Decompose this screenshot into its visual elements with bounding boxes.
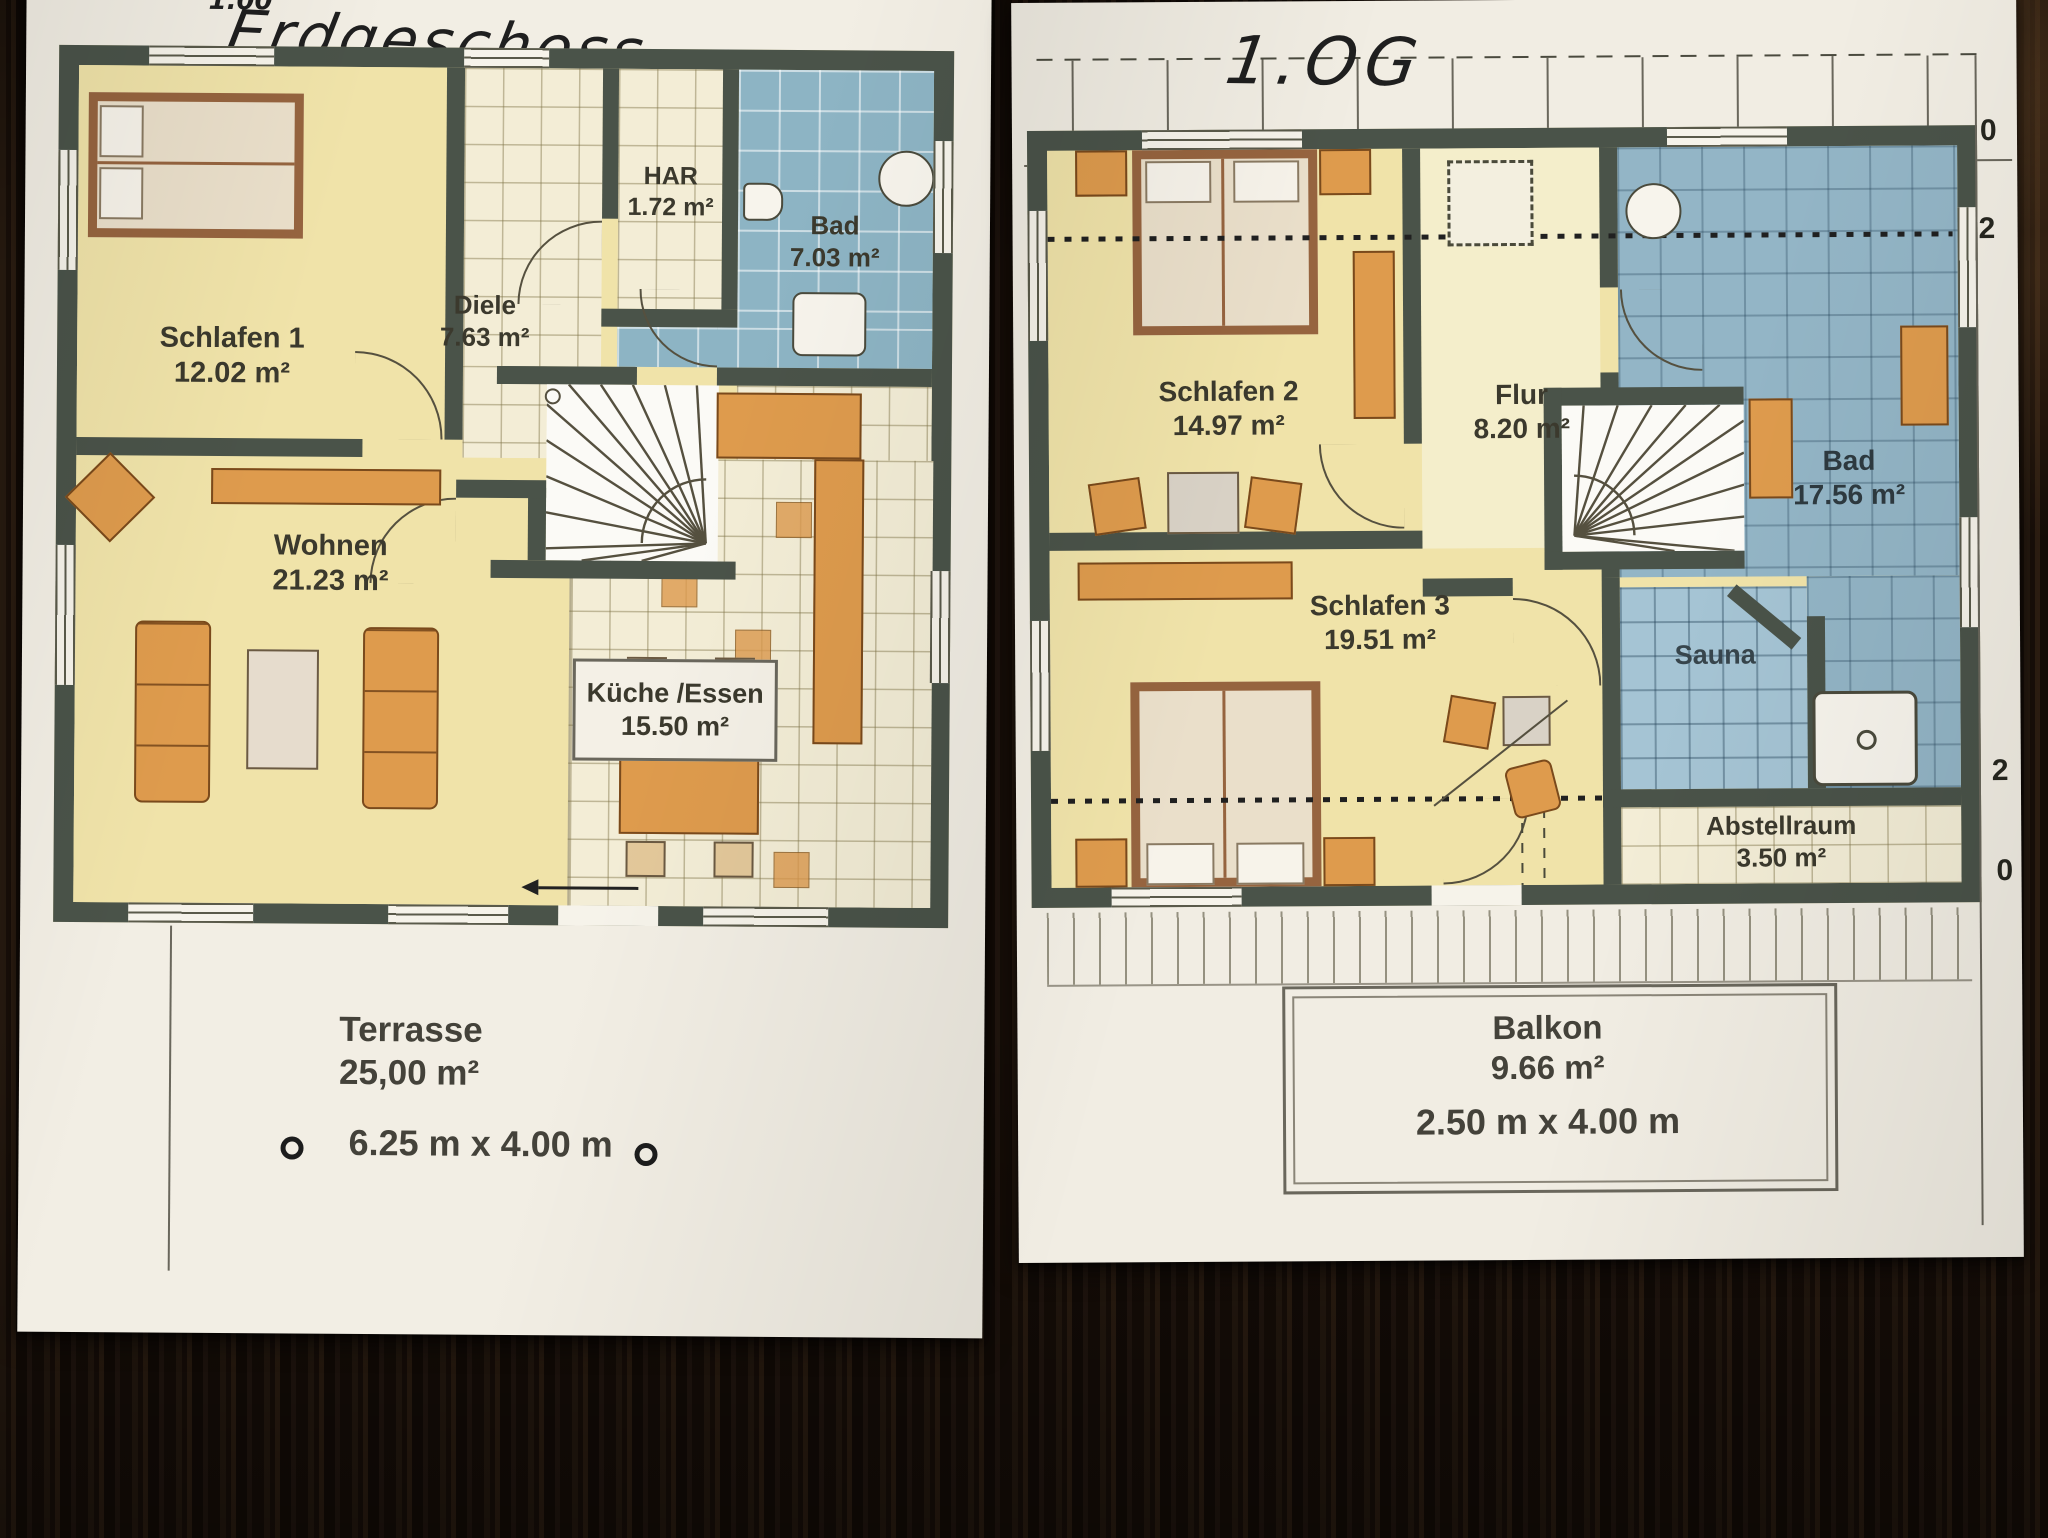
dimension-band-dashed-line xyxy=(1037,53,1977,61)
room-area: 12.02 m² xyxy=(117,356,347,393)
label-bad-og: Bad 17.56 m² xyxy=(1749,443,1949,513)
wall xyxy=(717,367,932,387)
label-kueche: Küche /Essen 15.50 m² xyxy=(572,658,778,761)
room-area: 17.56 m² xyxy=(1749,478,1949,513)
desk-chair xyxy=(1443,695,1496,750)
bed-schlafen2 xyxy=(1132,149,1318,335)
edge-number: 2 xyxy=(1978,211,2018,248)
window xyxy=(1142,129,1302,150)
pillow xyxy=(1145,161,1211,203)
sideboard-schlafen3 xyxy=(1078,561,1293,600)
desk-top xyxy=(1502,696,1550,746)
label-flur: Flur 8.20 m² xyxy=(1446,378,1596,447)
room-name: Abstellraum xyxy=(1651,810,1911,843)
window xyxy=(58,150,79,270)
entrance-arrow-head xyxy=(521,879,538,895)
window xyxy=(149,46,274,67)
edge-number: 0 xyxy=(1996,853,2023,890)
window xyxy=(464,48,549,69)
window xyxy=(1027,211,1048,341)
wall xyxy=(1545,551,1745,570)
window xyxy=(55,545,76,685)
label-sauna: Sauna xyxy=(1635,638,1795,672)
room-name: Bad xyxy=(1749,443,1949,478)
chair xyxy=(1088,477,1147,536)
terrace-area: 25,00 m² xyxy=(339,1052,589,1096)
window xyxy=(1667,126,1787,147)
dining-chair xyxy=(625,841,665,877)
coffee-table xyxy=(246,649,319,769)
room-area: 3.50 m² xyxy=(1651,841,1911,874)
pillow xyxy=(1146,843,1214,885)
window xyxy=(933,141,954,253)
wall xyxy=(491,560,736,580)
room-name: Wohnen xyxy=(216,528,446,565)
room-area: 21.23 m² xyxy=(215,563,445,600)
sofa-right xyxy=(362,627,439,810)
window xyxy=(703,906,828,927)
paper-erdgeschoss: 1.00 Erdgeschoss xyxy=(17,0,992,1338)
wall xyxy=(1599,147,1618,287)
room-area: 7.63 m² xyxy=(422,321,547,354)
staircase-eg xyxy=(546,384,719,561)
room-name: HAR xyxy=(613,161,728,192)
room-area: 8.20 m² xyxy=(1447,412,1597,447)
wall xyxy=(528,488,547,560)
bathtub xyxy=(792,292,866,357)
kitchen-tile xyxy=(773,852,809,888)
wall xyxy=(444,68,465,440)
label-balkon-dimensions: 2.50 m x 4.00 m xyxy=(1383,1099,1713,1145)
window xyxy=(1030,621,1051,751)
room-area: 1.72 m² xyxy=(613,191,728,222)
room-name: Schlafen 2 xyxy=(1143,374,1313,409)
label-terrasse-dimensions: 6.25 m x 4.00 m xyxy=(348,1121,608,1167)
wall xyxy=(1602,577,1622,884)
window xyxy=(930,571,951,683)
stair-newel-dot xyxy=(545,388,561,404)
balcony-area: 9.66 m² xyxy=(1438,1047,1658,1089)
pillow xyxy=(1233,160,1299,202)
sideboard-wohnen xyxy=(211,468,441,506)
plan-erdgeschoss: Schlafen 1 12.02 m² Diele 7.63 m² HAR 1.… xyxy=(53,45,954,928)
bed-divider xyxy=(1222,691,1226,878)
room-name: Schlafen 1 xyxy=(117,320,347,357)
paper-og: 1.OG xyxy=(1011,0,2024,1263)
label-bad-eg: Bad 7.03 m² xyxy=(755,210,915,275)
label-wohnen: Wohnen 21.23 m² xyxy=(215,528,445,600)
edge-number: 0 xyxy=(1980,113,2020,150)
chair xyxy=(1244,476,1302,534)
sink xyxy=(878,151,934,207)
wall xyxy=(497,366,637,385)
kitchen-tile xyxy=(776,502,812,538)
terrace-marker-dot xyxy=(280,1136,303,1159)
window xyxy=(388,904,508,925)
label-diele: Diele 7.63 m² xyxy=(422,289,547,353)
label-har: HAR 1.72 m² xyxy=(613,161,728,223)
nightstand xyxy=(1323,837,1375,886)
room-name: Küche /Essen xyxy=(576,677,775,711)
bath-bench xyxy=(1900,325,1949,425)
balcony-door-opening xyxy=(1432,885,1522,906)
room-name: Schlafen 3 xyxy=(1280,588,1480,623)
label-schlafen1: Schlafen 1 12.02 m² xyxy=(117,320,347,392)
flur-dashed-square xyxy=(1447,160,1534,247)
wall xyxy=(456,480,546,499)
kitchen-counter-right xyxy=(812,459,864,744)
bed-schlafen1 xyxy=(88,92,304,238)
pillow xyxy=(1236,842,1304,884)
window xyxy=(1112,887,1242,908)
handwritten-title-og: 1.OG xyxy=(1221,22,1430,101)
nightstand xyxy=(1075,150,1127,196)
dining-chair xyxy=(713,841,753,877)
terrace-boundary-line xyxy=(168,926,172,1271)
terrace-name: Terrasse xyxy=(339,1009,589,1053)
pillow xyxy=(99,167,143,219)
nightstand xyxy=(1319,149,1371,195)
decking-hatch-band xyxy=(1047,907,1972,987)
spiral-stairs-icon xyxy=(546,384,719,561)
shower-drain xyxy=(1857,730,1877,750)
label-schlafen2: Schlafen 2 14.97 m² xyxy=(1143,374,1313,443)
label-terrasse: Terrasse 25,00 m² xyxy=(339,1009,590,1096)
room-area: 15.50 m² xyxy=(575,709,774,743)
room-sauna xyxy=(1620,586,1808,789)
label-balkon: Balkon 9.66 m² xyxy=(1437,1007,1657,1089)
photo-of-floor-plans: 1.00 Erdgeschoss xyxy=(0,0,2048,1538)
room-area: 7.03 m² xyxy=(755,241,915,274)
wall xyxy=(1603,787,1961,807)
window xyxy=(128,902,253,923)
label-schlafen3: Schlafen 3 19.51 m² xyxy=(1280,588,1480,658)
bed-schlafen3 xyxy=(1130,681,1321,887)
small-table xyxy=(1167,472,1239,534)
terrace-marker-dot xyxy=(634,1143,657,1166)
plan-og: Schlafen 2 14.97 m² Flur 8.20 m² Bad 17.… xyxy=(1027,125,1982,908)
bed-divider xyxy=(97,161,294,165)
wardrobe-schlafen2 xyxy=(1353,251,1396,419)
sink xyxy=(1625,183,1681,239)
nightstand xyxy=(1075,838,1127,887)
room-name: Bad xyxy=(755,210,915,243)
pillow xyxy=(99,105,143,157)
room-name: Diele xyxy=(422,289,547,322)
room-name: Flur xyxy=(1446,378,1596,413)
wall xyxy=(76,437,362,457)
edge-number: 2 xyxy=(1992,753,2024,790)
room-area: 14.97 m² xyxy=(1144,408,1314,443)
wall xyxy=(1402,149,1422,444)
kitchen-counter-top xyxy=(716,392,861,459)
balcony-name: Balkon xyxy=(1437,1007,1657,1049)
sofa-left xyxy=(134,620,211,803)
room-area: 19.51 m² xyxy=(1280,622,1480,657)
terrace-door-opening xyxy=(558,905,658,926)
bed-divider xyxy=(1221,159,1225,326)
label-abstellraum: Abstellraum 3.50 m² xyxy=(1651,810,1911,875)
